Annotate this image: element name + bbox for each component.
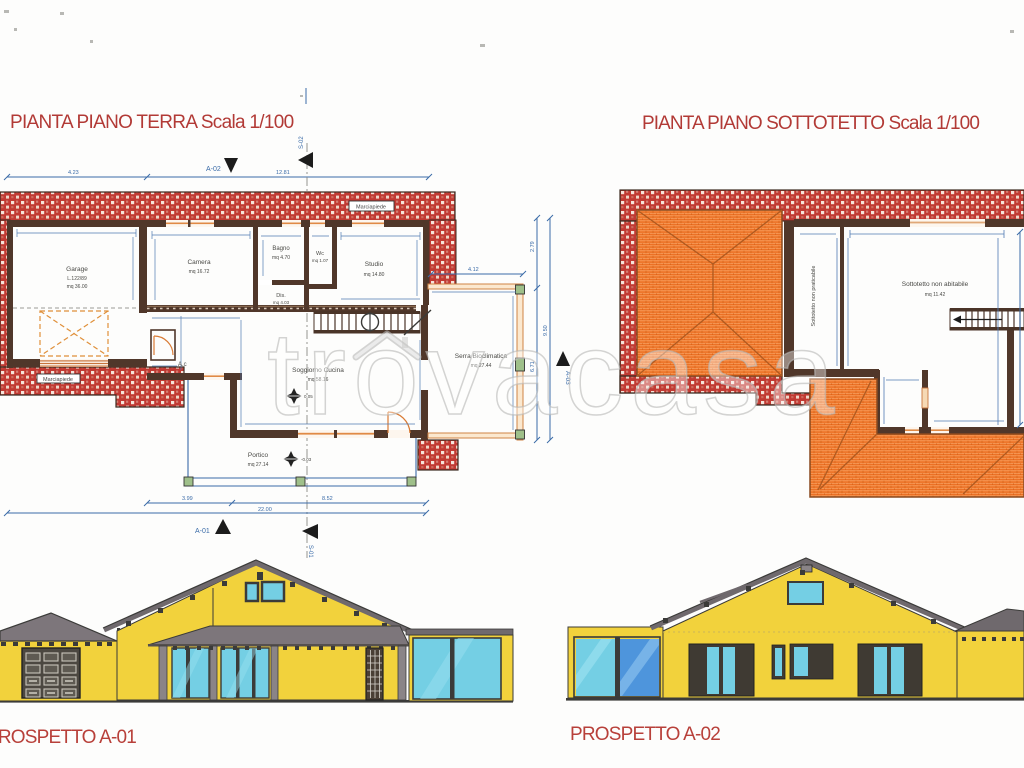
svg-text:Sottotetto non abitabile: Sottotetto non abitabile <box>902 281 969 288</box>
svg-text:PROSPETTO A-02: PROSPETTO A-02 <box>570 724 720 745</box>
svg-text:PROSPETTO A-01: PROSPETTO A-01 <box>0 727 136 748</box>
svg-text:mq 16.72: mq 16.72 <box>189 269 210 275</box>
svg-text:12.81: 12.81 <box>276 170 290 176</box>
svg-text:mq 36.00: mq 36.00 <box>67 284 88 290</box>
svg-text:PIANTA PIANO TERRA Scala 1/10: PIANTA PIANO TERRA Scala 1/100 <box>10 112 294 133</box>
svg-text:4.23: 4.23 <box>68 170 79 176</box>
svg-text:A.c: A.c <box>178 362 187 368</box>
svg-text:L.122/89: L.122/89 <box>67 276 87 282</box>
svg-text:A-01: A-01 <box>195 528 210 535</box>
svg-text:4.12: 4.12 <box>468 267 479 273</box>
svg-text:Garage: Garage <box>66 266 88 273</box>
svg-text:22.00: 22.00 <box>258 507 272 513</box>
svg-text:S-02: S-02 <box>299 136 305 149</box>
svg-text:Bagno: Bagno <box>272 246 290 252</box>
svg-text:Marciapiede: Marciapiede <box>43 377 73 383</box>
svg-text:Dis.: Dis. <box>276 293 286 299</box>
svg-text:8.52: 8.52 <box>322 496 333 502</box>
svg-text:Marciapiede: Marciapiede <box>356 205 386 211</box>
svg-text:Portico: Portico <box>248 452 269 459</box>
svg-text:trovacasa: trovacasa <box>267 308 842 440</box>
svg-text:Camera: Camera <box>187 259 211 266</box>
svg-text:mq 27.14: mq 27.14 <box>248 462 269 468</box>
svg-text:Wc: Wc <box>316 251 324 257</box>
svg-text:Studio: Studio <box>365 261 384 268</box>
svg-text:mq 14.80: mq 14.80 <box>364 272 385 278</box>
svg-text:S-01: S-01 <box>307 545 313 558</box>
svg-text:A-02: A-02 <box>206 166 221 173</box>
svg-text:mq 4.70: mq 4.70 <box>272 255 290 261</box>
svg-text:3.99: 3.99 <box>182 496 193 502</box>
svg-text:mq 4.03: mq 4.03 <box>273 300 290 305</box>
svg-text:2.79: 2.79 <box>530 241 536 252</box>
svg-text:-0.03: -0.03 <box>301 457 312 462</box>
svg-text:PIANTA PIANO SOTTOTETTO Scala: PIANTA PIANO SOTTOTETTO Scala 1/100 <box>642 113 979 134</box>
svg-text:mq 1.07: mq 1.07 <box>312 258 329 263</box>
svg-text:mq 11.42: mq 11.42 <box>925 292 946 298</box>
